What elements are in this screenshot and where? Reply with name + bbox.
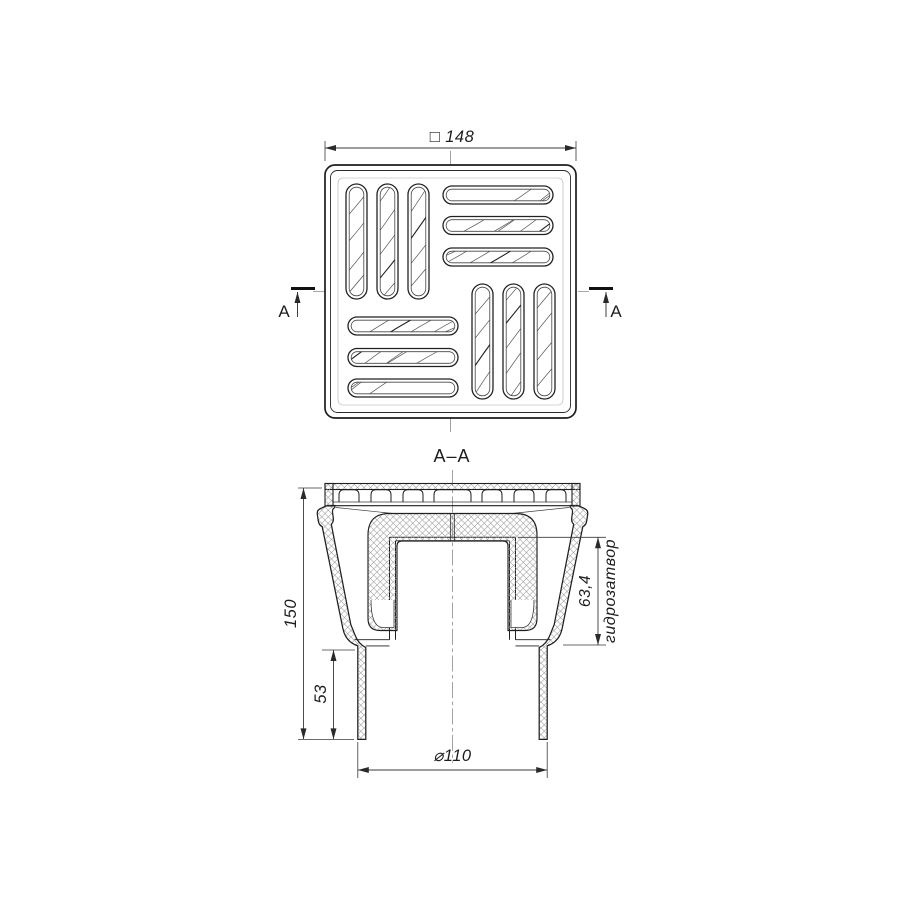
floor-drain-drawing: □ 148 A A A–A	[0, 0, 900, 900]
grate-frame	[325, 165, 576, 418]
width-dim-label: □ 148	[430, 128, 475, 146]
cut-letter-right: A	[610, 302, 622, 321]
section-view: A–A 150	[282, 446, 619, 778]
section-title: A–A	[433, 446, 470, 466]
pipe-diameter-label: ⌀110	[433, 747, 472, 765]
seal-height-label: 63,4	[577, 575, 594, 607]
section-marker-right: A	[589, 289, 622, 322]
cut-letter-left: A	[278, 302, 290, 321]
top-view: □ 148 A A	[278, 128, 622, 432]
spigot-height-label: 53	[312, 684, 330, 704]
technical-drawing-page: □ 148 A A A–A	[0, 0, 900, 900]
dimension-diameter-110: ⌀110	[358, 742, 547, 778]
dimension-spigot-53: 53	[312, 650, 355, 739]
section-marker-left: A	[278, 289, 315, 322]
seal-name-label: гидрозатвор	[602, 539, 619, 643]
overall-height-label: 150	[282, 599, 300, 628]
